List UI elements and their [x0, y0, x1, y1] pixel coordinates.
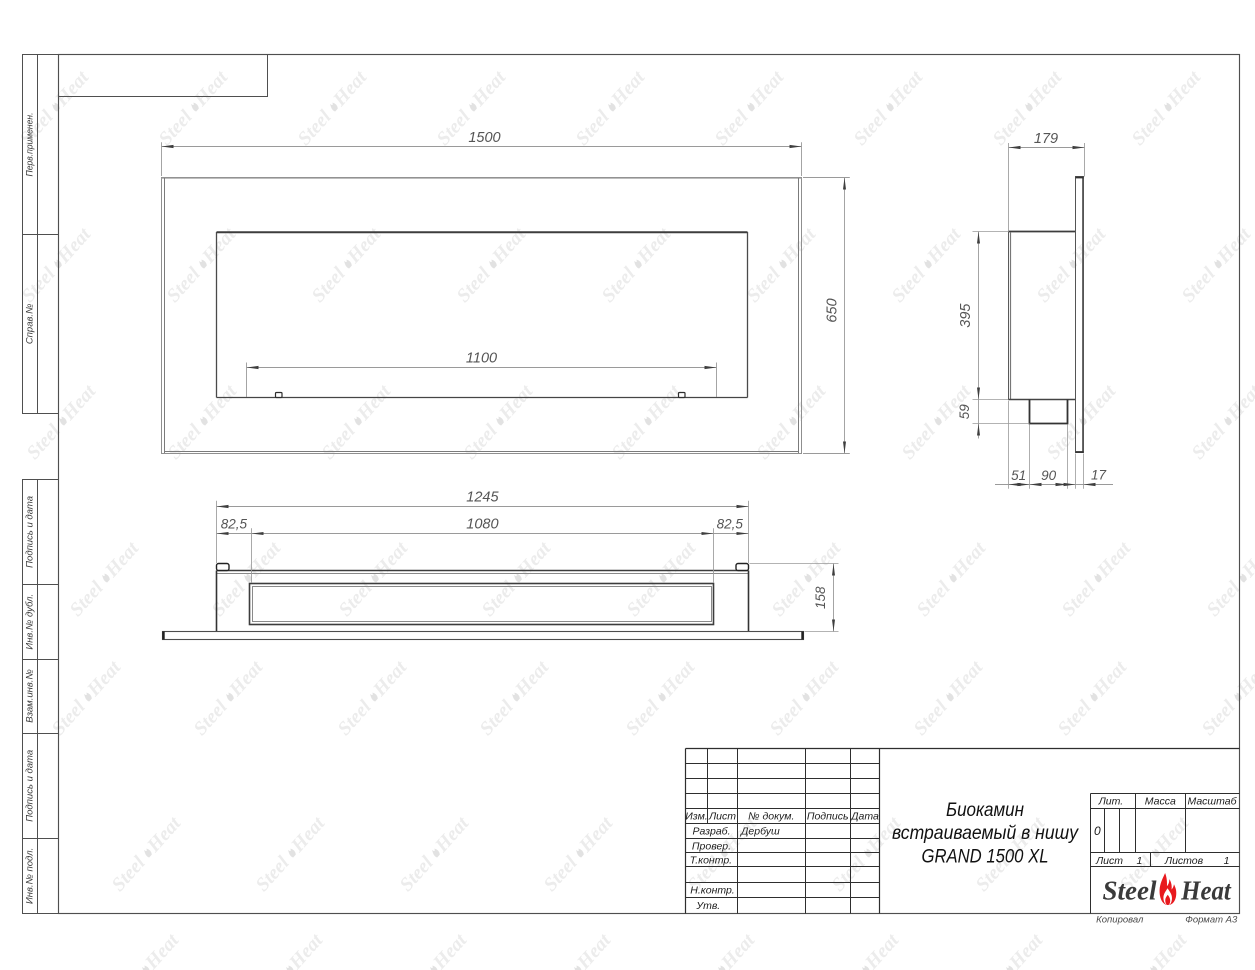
- svg-text:GRAND 1500 XL: GRAND 1500 XL: [922, 846, 1049, 868]
- svg-text:Подпись и дата: Подпись и дата: [25, 750, 36, 822]
- svg-text:90: 90: [1041, 468, 1057, 483]
- svg-text:0: 0: [1094, 824, 1101, 838]
- svg-text:Лит.: Лит.: [1098, 796, 1124, 808]
- svg-text:59: 59: [957, 404, 972, 420]
- svg-text:51: 51: [1011, 468, 1026, 483]
- svg-text:82,5: 82,5: [221, 517, 248, 532]
- svg-text:Дата: Дата: [850, 811, 879, 823]
- svg-text:1: 1: [1224, 855, 1230, 867]
- svg-text:Подпись: Подпись: [807, 811, 849, 823]
- svg-text:Масса: Масса: [1145, 796, 1176, 808]
- svg-text:Перв.применен.: Перв.применен.: [25, 113, 36, 177]
- svg-text:Провер.: Провер.: [692, 840, 731, 852]
- svg-text:17: 17: [1091, 468, 1107, 483]
- svg-text:Биокамин: Биокамин: [946, 799, 1024, 821]
- svg-text:встраиваемый в нишу: встраиваемый в нишу: [892, 822, 1079, 844]
- svg-text:Н.контр.: Н.контр.: [690, 885, 734, 897]
- svg-text:Взам.инв.№: Взам.инв.№: [25, 669, 36, 722]
- svg-text:Heat: Heat: [1180, 876, 1231, 906]
- svg-text:Разраб.: Разраб.: [693, 826, 731, 838]
- svg-text:Утв.: Утв.: [695, 900, 720, 912]
- svg-text:82,5: 82,5: [717, 517, 744, 532]
- svg-text:Масштаб: Масштаб: [1187, 796, 1237, 808]
- svg-text:1100: 1100: [466, 350, 497, 366]
- svg-text:395: 395: [958, 303, 974, 328]
- svg-text:179: 179: [1034, 131, 1058, 147]
- svg-text:650: 650: [825, 298, 841, 322]
- svg-text:Листов: Листов: [1164, 855, 1204, 867]
- svg-text:1080: 1080: [466, 517, 498, 533]
- svg-text:Steel: Steel: [1103, 876, 1157, 906]
- svg-text:Инв.№ подл.: Инв.№ подл.: [25, 848, 36, 904]
- svg-text:1: 1: [1136, 855, 1142, 867]
- svg-text:158: 158: [813, 586, 828, 609]
- svg-text:Изм.: Изм.: [685, 811, 707, 823]
- svg-text:№ докум.: № докум.: [748, 811, 794, 823]
- svg-text:Т.контр.: Т.контр.: [690, 854, 732, 866]
- svg-text:Копировал: Копировал: [1096, 914, 1144, 925]
- svg-text:Справ.№: Справ.№: [25, 304, 36, 345]
- svg-text:1245: 1245: [466, 490, 499, 506]
- svg-text:Дербуш: Дербуш: [740, 826, 780, 838]
- svg-text:Подпись и дата: Подпись и дата: [25, 496, 36, 568]
- svg-text:Лист: Лист: [1095, 855, 1123, 867]
- svg-text:1500: 1500: [468, 130, 500, 146]
- svg-text:Лист: Лист: [708, 811, 736, 823]
- svg-text:Инв.№ дубл.: Инв.№ дубл.: [25, 594, 36, 650]
- svg-text:Формат А3: Формат А3: [1185, 914, 1238, 925]
